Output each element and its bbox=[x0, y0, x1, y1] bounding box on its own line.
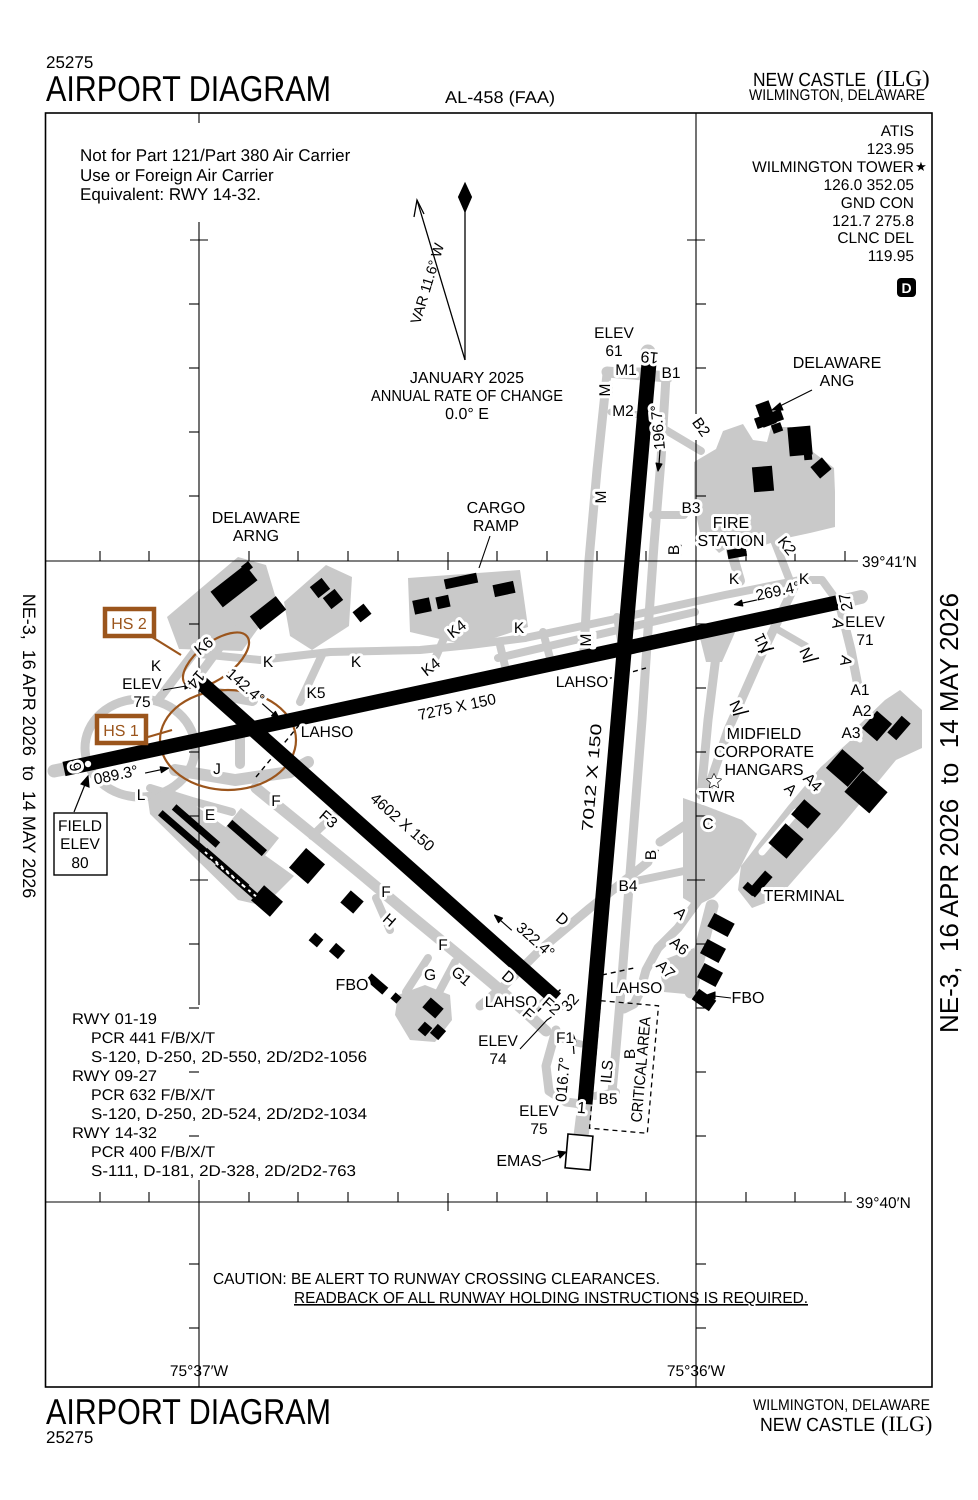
svg-text:CARGO: CARGO bbox=[467, 500, 526, 517]
svg-text:Use or Foreign Air Carrier: Use or Foreign Air Carrier bbox=[80, 166, 274, 185]
svg-text:WILMINGTON TOWER: WILMINGTON TOWER bbox=[752, 159, 914, 176]
svg-text:ELEV: ELEV bbox=[594, 325, 634, 342]
svg-text:RWY 14-32: RWY 14-32 bbox=[72, 1125, 157, 1142]
svg-text:25275: 25275 bbox=[46, 1428, 93, 1447]
svg-text:39°41′N: 39°41′N bbox=[862, 554, 917, 571]
svg-text:K: K bbox=[151, 658, 162, 675]
svg-text:121.7 275.8: 121.7 275.8 bbox=[832, 213, 914, 230]
svg-text:F: F bbox=[381, 884, 390, 901]
svg-text:S-120, D-250, 2D-524, 2D/2D2-1: S-120, D-250, 2D-524, 2D/2D2-1034 bbox=[91, 1106, 367, 1123]
svg-text:DELAWARE: DELAWARE bbox=[793, 355, 882, 372]
svg-text:S-120, D-250, 2D-550, 2D/2D2-1: S-120, D-250, 2D-550, 2D/2D2-1056 bbox=[91, 1049, 367, 1066]
svg-text:WILMINGTON, DELAWARE: WILMINGTON, DELAWARE bbox=[749, 87, 925, 104]
svg-text:HANGARS: HANGARS bbox=[724, 762, 803, 779]
svg-text:1: 1 bbox=[576, 1100, 586, 1118]
svg-text:FIRE: FIRE bbox=[713, 515, 749, 532]
svg-text:EMAS: EMAS bbox=[496, 1153, 541, 1170]
svg-text:19: 19 bbox=[640, 347, 659, 365]
svg-text:ARNG: ARNG bbox=[233, 528, 279, 545]
svg-text:80: 80 bbox=[71, 855, 89, 872]
svg-text:FBO: FBO bbox=[732, 990, 765, 1007]
svg-text:119.95: 119.95 bbox=[868, 248, 914, 265]
svg-text:ELEV: ELEV bbox=[845, 614, 885, 631]
svg-text:E: E bbox=[205, 807, 215, 824]
svg-text:75°37′W: 75°37′W bbox=[170, 1363, 229, 1380]
svg-text:K: K bbox=[799, 571, 810, 588]
svg-text:STATION: STATION bbox=[698, 533, 765, 550]
svg-text:G: G bbox=[424, 967, 436, 984]
svg-text:M: M bbox=[597, 384, 614, 397]
svg-text:HS 2: HS 2 bbox=[111, 616, 147, 633]
svg-text:39°40′N: 39°40′N bbox=[856, 1195, 911, 1212]
svg-text:F: F bbox=[271, 793, 280, 810]
svg-text:75°36′W: 75°36′W bbox=[667, 1363, 726, 1380]
svg-text:M2: M2 bbox=[612, 403, 634, 420]
svg-text:TWR: TWR bbox=[699, 789, 735, 806]
svg-text:61: 61 bbox=[605, 343, 622, 360]
svg-text:A1: A1 bbox=[851, 682, 870, 699]
svg-text:K: K bbox=[729, 571, 740, 588]
svg-text:ANG: ANG bbox=[820, 373, 855, 390]
svg-text:71: 71 bbox=[856, 632, 873, 649]
svg-text:NE-3, 16 APR 2026 to 14 MAY: NE-3, 16 APR 2026 to 14 MAY 2026 bbox=[19, 594, 39, 899]
svg-text:ANNUAL RATE OF CHANGE: ANNUAL RATE OF CHANGE bbox=[371, 388, 563, 405]
svg-text:126.0 352.05: 126.0 352.05 bbox=[823, 177, 914, 194]
svg-text:0.0° E: 0.0° E bbox=[445, 406, 489, 423]
svg-text:F: F bbox=[438, 937, 447, 954]
svg-text:B: B bbox=[643, 850, 660, 860]
svg-text:CAUTION: BE ALERT TO RUNWAY CR: CAUTION: BE ALERT TO RUNWAY CROSSING CLE… bbox=[213, 1271, 660, 1288]
svg-text:ELEV: ELEV bbox=[478, 1033, 518, 1050]
svg-text:27: 27 bbox=[836, 591, 856, 612]
svg-text:AIRPORT DIAGRAM: AIRPORT DIAGRAM bbox=[46, 68, 331, 109]
svg-text:75: 75 bbox=[530, 1121, 547, 1138]
svg-text:(ILG): (ILG) bbox=[881, 1411, 932, 1436]
svg-text:RWY 09-27: RWY 09-27 bbox=[72, 1068, 157, 1085]
svg-text:MIDFIELD: MIDFIELD bbox=[727, 726, 802, 743]
svg-text:S-111, D-181, 2D-328, 2D/2D2-7: S-111, D-181, 2D-328, 2D/2D2-763 bbox=[91, 1163, 356, 1180]
svg-text:74: 74 bbox=[489, 1051, 507, 1068]
svg-text:★: ★ bbox=[915, 159, 927, 174]
svg-text:L: L bbox=[137, 787, 146, 804]
svg-text:READBACK OF ALL RUNWAY HOLDING: READBACK OF ALL RUNWAY HOLDING INSTRUCTI… bbox=[294, 1290, 808, 1307]
svg-text:J: J bbox=[213, 761, 221, 778]
svg-text:AIRPORT DIAGRAM: AIRPORT DIAGRAM bbox=[46, 1391, 331, 1432]
svg-text:LAHSO: LAHSO bbox=[610, 980, 663, 997]
svg-text:Equivalent: RWY 14-32.: Equivalent: RWY 14-32. bbox=[80, 185, 261, 204]
svg-text:LAHSO: LAHSO bbox=[301, 724, 354, 741]
svg-text:D: D bbox=[901, 280, 911, 296]
svg-text:K: K bbox=[514, 620, 525, 637]
svg-text:K: K bbox=[263, 654, 274, 671]
svg-text:B5: B5 bbox=[599, 1091, 618, 1108]
svg-text:PCR 632 F/B/X/T: PCR 632 F/B/X/T bbox=[91, 1087, 216, 1104]
svg-text:ELEV: ELEV bbox=[60, 836, 100, 853]
svg-text:Not for Part 121/Part 380 Air: Not for Part 121/Part 380 Air Carrier bbox=[80, 146, 351, 165]
svg-text:RWY 01-19: RWY 01-19 bbox=[72, 1011, 157, 1028]
svg-text:K5: K5 bbox=[307, 685, 326, 702]
svg-text:B4: B4 bbox=[619, 878, 638, 895]
svg-text:NEW CASTLE: NEW CASTLE bbox=[760, 1415, 875, 1436]
svg-text:PCR 441 F/B/X/T: PCR 441 F/B/X/T bbox=[91, 1030, 216, 1047]
svg-text:AL-458 (FAA): AL-458 (FAA) bbox=[445, 88, 555, 107]
svg-text:LAHSO: LAHSO bbox=[556, 674, 609, 691]
svg-text:A3: A3 bbox=[842, 725, 861, 742]
svg-text:B3: B3 bbox=[682, 500, 701, 517]
svg-text:CORPORATE: CORPORATE bbox=[714, 744, 814, 761]
svg-text:F1: F1 bbox=[556, 1030, 574, 1047]
svg-text:TERMINAL: TERMINAL bbox=[764, 888, 845, 905]
svg-text:PCR 400 F/B/X/T: PCR 400 F/B/X/T bbox=[91, 1144, 216, 1161]
svg-text:JANUARY 2025: JANUARY 2025 bbox=[410, 370, 524, 387]
svg-text:NE-3, 16 APR 2026 to 14 MAY: NE-3, 16 APR 2026 to 14 MAY 2026 bbox=[934, 593, 964, 1033]
svg-text:C: C bbox=[702, 816, 713, 833]
svg-text:K: K bbox=[351, 654, 362, 671]
svg-text:A2: A2 bbox=[853, 703, 872, 720]
svg-text:DELAWARE: DELAWARE bbox=[212, 510, 301, 527]
svg-text:ILS: ILS bbox=[598, 1059, 617, 1084]
svg-text:FBO: FBO bbox=[336, 977, 369, 994]
svg-text:M: M bbox=[593, 491, 610, 504]
svg-text:ATIS: ATIS bbox=[881, 123, 914, 140]
svg-text:CLNC DEL: CLNC DEL bbox=[837, 230, 914, 247]
svg-text:M1: M1 bbox=[615, 362, 637, 379]
svg-text:RAMP: RAMP bbox=[473, 518, 519, 535]
svg-text:ELEV: ELEV bbox=[519, 1103, 559, 1120]
svg-text:FIELD: FIELD bbox=[58, 818, 102, 835]
svg-text:HS 1: HS 1 bbox=[103, 723, 139, 740]
svg-text:ELEV: ELEV bbox=[122, 676, 162, 693]
svg-text:B: B bbox=[666, 545, 683, 555]
svg-text:75: 75 bbox=[133, 694, 150, 711]
svg-text:B1: B1 bbox=[662, 365, 681, 382]
svg-text:M: M bbox=[578, 634, 595, 647]
svg-text:GND CON: GND CON bbox=[841, 195, 914, 212]
svg-text:123.95: 123.95 bbox=[867, 141, 914, 158]
